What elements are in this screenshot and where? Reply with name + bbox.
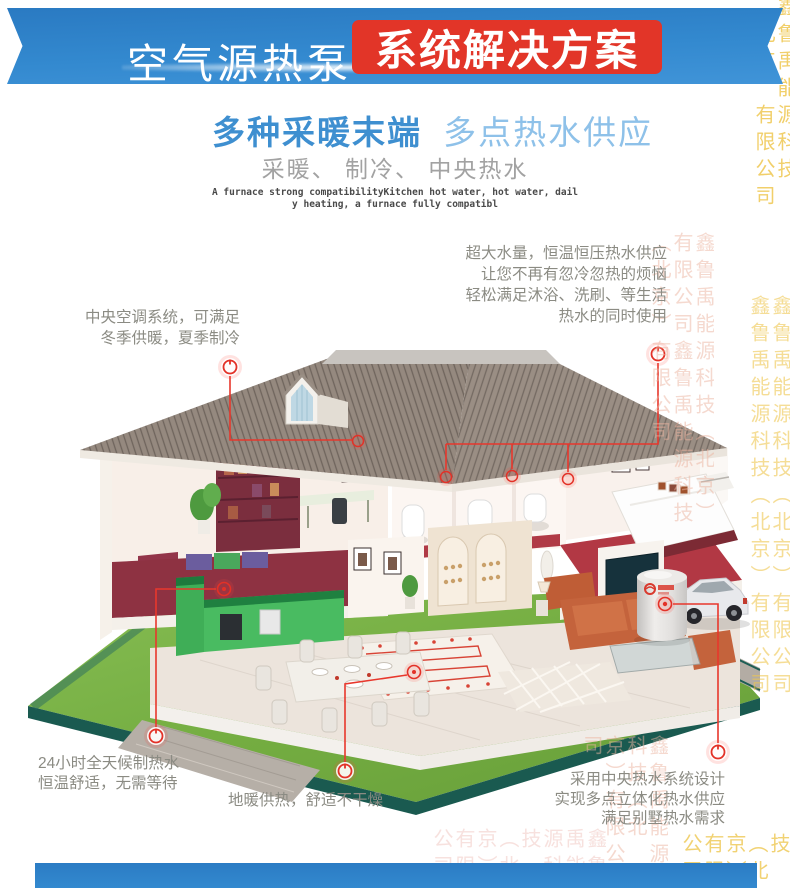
marker-central-ac bbox=[218, 355, 242, 379]
heading-bold: 多种采暖末端 bbox=[212, 114, 422, 151]
promo-page: 鑫鲁禹能源科技（北京）有限公司鑫鲁禹能源科技（北京）有限公司 鑫鲁禹能源科技（北… bbox=[0, 0, 790, 888]
footer-bar bbox=[35, 863, 757, 888]
callout-line: 冬季供暖，夏季制冷 bbox=[85, 328, 240, 349]
callout-line: 超大水量，恒温恒压热水供应 bbox=[465, 243, 667, 264]
callout-central-ac: 中央空调系统，可满足 冬季供暖，夏季制冷 bbox=[85, 307, 240, 349]
callout-line: 实现多点立体化热水供应 bbox=[554, 790, 725, 810]
english-line-2: y heating, a furnace fully compatibl bbox=[0, 199, 790, 211]
heading-subtitle: 采暖、 制冷、 中央热水 bbox=[0, 150, 790, 184]
callout-line: 24小时全天候制热水 bbox=[38, 754, 179, 774]
callout-line: 让您不再有忽冷忽热的烦恼 bbox=[465, 264, 667, 285]
callout-line: 热水的同时使用 bbox=[465, 306, 667, 327]
callout-central-hot-water-design: 采用中央热水系统设计 实现多点立体化热水供应 满足别墅热水需求 bbox=[554, 770, 725, 829]
callout-floor-heating: 地暖供热，舒适不干燥 bbox=[228, 790, 383, 811]
callout-line: 轻松满足沐浴、洗刷、等生活 bbox=[465, 285, 667, 306]
callout-line: 地暖供热，舒适不干燥 bbox=[228, 790, 383, 811]
english-line-1: A furnace strong compatibilityKitchen ho… bbox=[0, 187, 790, 199]
heading-light: 多点热水供应 bbox=[443, 114, 653, 151]
callout-line: 满足别墅热水需求 bbox=[554, 809, 725, 829]
marker-all-day bbox=[144, 724, 168, 748]
english-subtitle: A furnace strong compatibilityKitchen ho… bbox=[0, 187, 790, 211]
section-heading: 多种采暖末端 多点热水供应 bbox=[212, 106, 653, 154]
marker-hot-water bbox=[646, 342, 670, 366]
callout-line: 采用中央热水系统设计 bbox=[554, 770, 725, 790]
marker-central-design bbox=[706, 740, 730, 764]
callout-hot-water-supply: 超大水量，恒温恒压热水供应 让您不再有忽冷忽热的烦恼 轻松满足沐浴、洗刷、等生活… bbox=[465, 243, 667, 327]
callout-line: 恒温舒适，无需等待 bbox=[38, 774, 179, 794]
banner-title: 空气源热泵 bbox=[127, 30, 352, 90]
banner-badge: 系统解决方案 bbox=[352, 20, 662, 74]
marker-floor-heating bbox=[333, 759, 357, 783]
callout-all-day-hot-water: 24小时全天候制热水 恒温舒适，无需等待 bbox=[38, 754, 179, 794]
callout-line: 中央空调系统，可满足 bbox=[85, 307, 240, 328]
top-ribbon-banner: 空气源热泵 系统解决方案 bbox=[7, 8, 783, 84]
